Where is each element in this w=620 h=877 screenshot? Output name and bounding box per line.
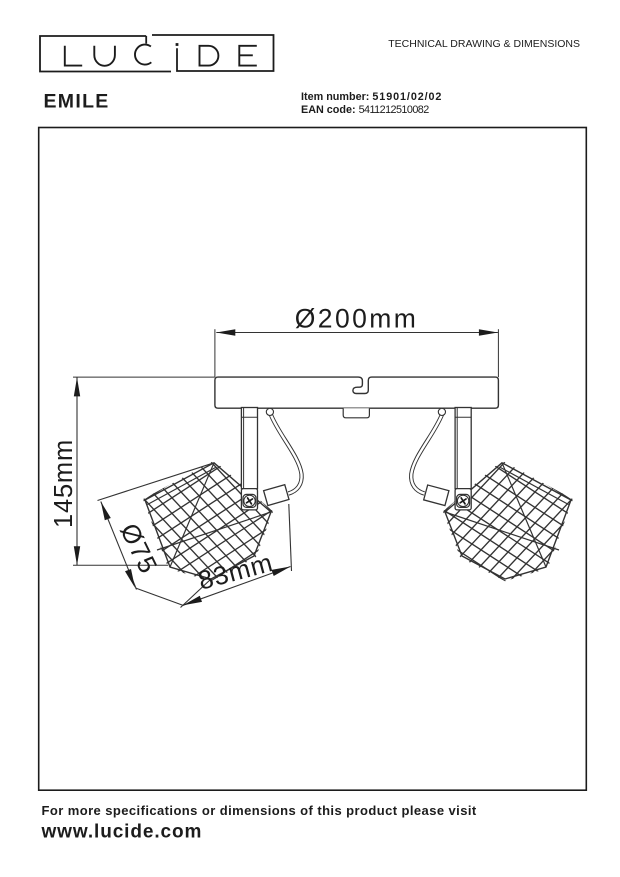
svg-text:EMILE: EMILE: [44, 91, 110, 113]
svg-text:145mm: 145mm: [50, 439, 78, 528]
svg-text:Item number: 51901/02/02: Item number: 51901/02/02: [301, 91, 442, 103]
svg-text:For more specifications or dim: For more specifications or dimensions of…: [42, 803, 477, 818]
svg-text:EAN code: 5411212510082: EAN code: 5411212510082: [301, 104, 429, 116]
svg-text:www.lucide.com: www.lucide.com: [41, 822, 203, 843]
svg-text:Ø200mm: Ø200mm: [295, 304, 418, 334]
svg-text:TECHNICAL DRAWING & DIMENSIONS: TECHNICAL DRAWING & DIMENSIONS: [388, 38, 580, 50]
